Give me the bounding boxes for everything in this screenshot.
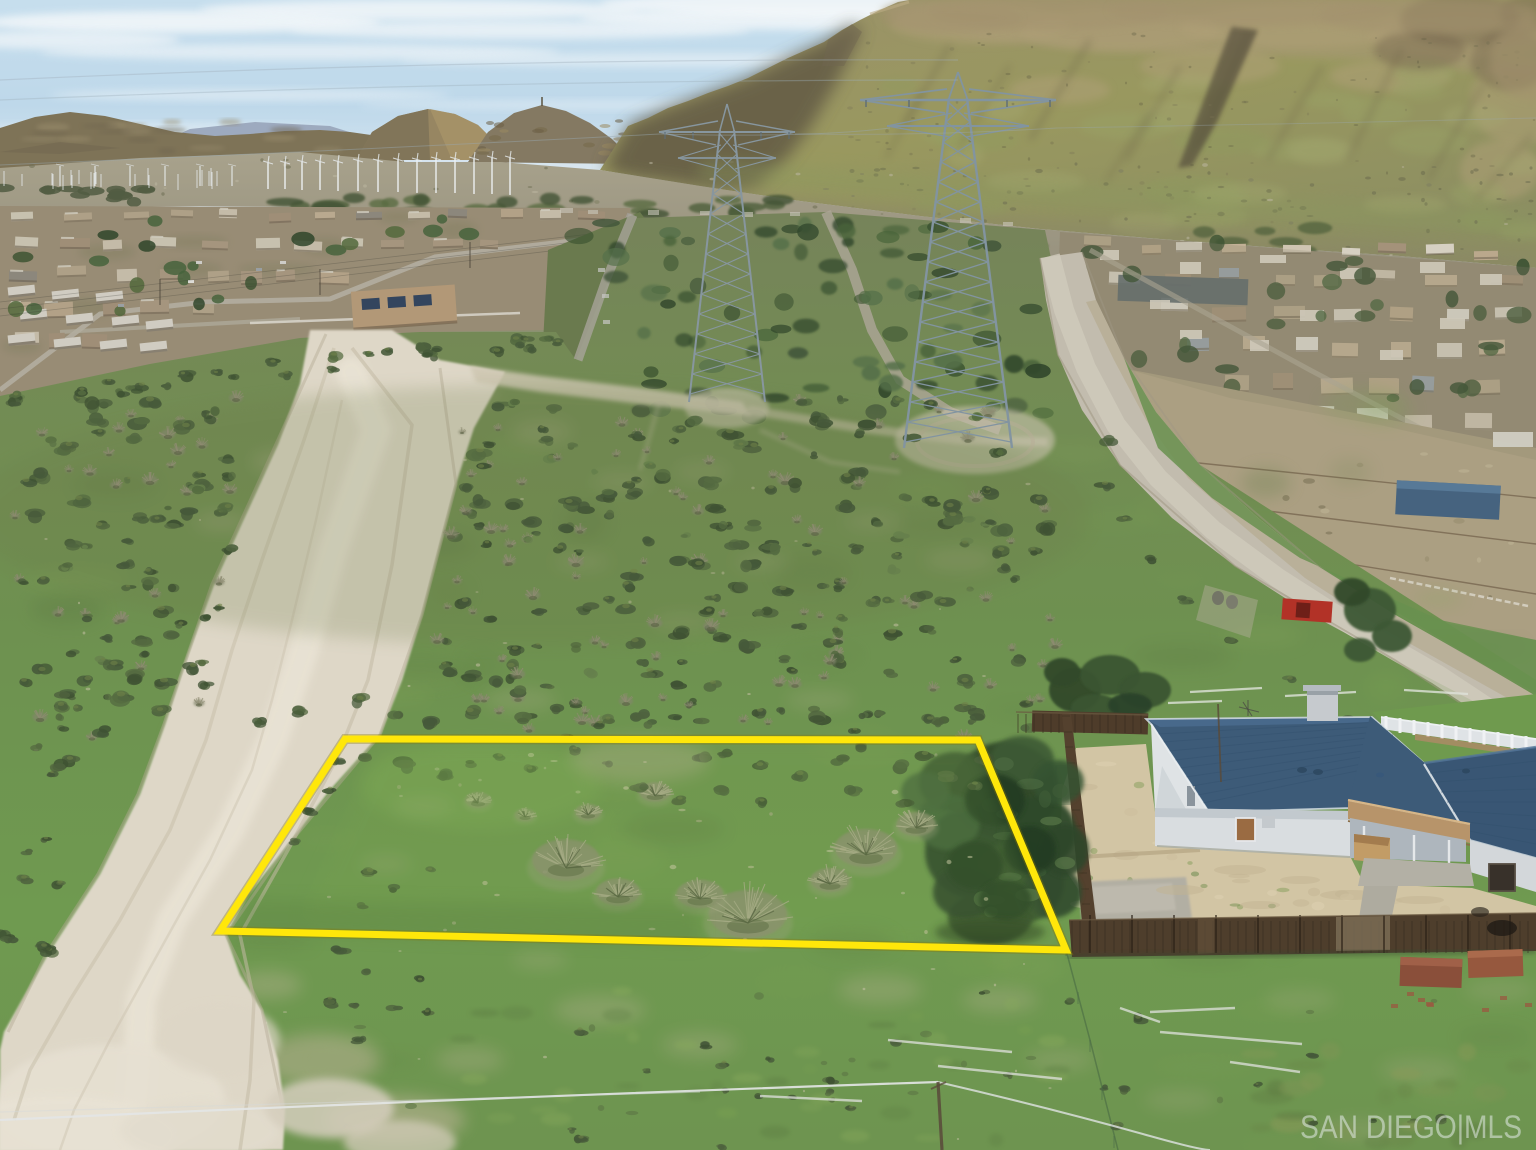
svg-text:SAN DIEGO|MLS: SAN DIEGO|MLS <box>1300 1109 1522 1145</box>
